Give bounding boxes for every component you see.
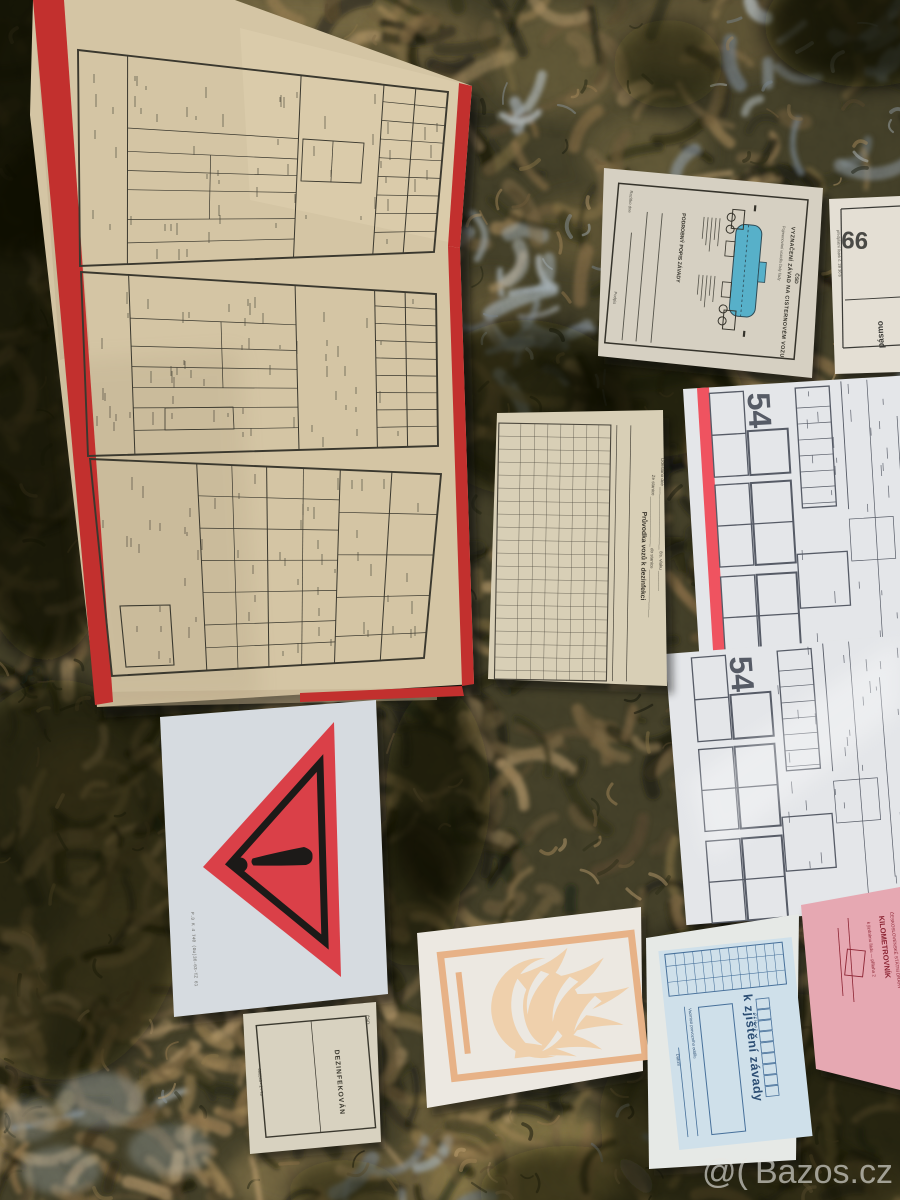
svg-text:Bazos.cz: Bazos.cz <box>755 1153 893 1191</box>
svg-text:54: 54 <box>740 391 778 429</box>
svg-text:ČSD: ČSD <box>365 1015 372 1026</box>
svg-text:@(: @( <box>702 1153 749 1191</box>
svg-text:Průvodka vozů k dezinfekci: Průvodka vozů k dezinfekci <box>639 512 649 601</box>
svg-text:99: 99 <box>841 226 869 254</box>
svg-text:pásmo: pásmo <box>875 321 886 349</box>
svg-text:ČSD: ČSD <box>793 273 801 285</box>
